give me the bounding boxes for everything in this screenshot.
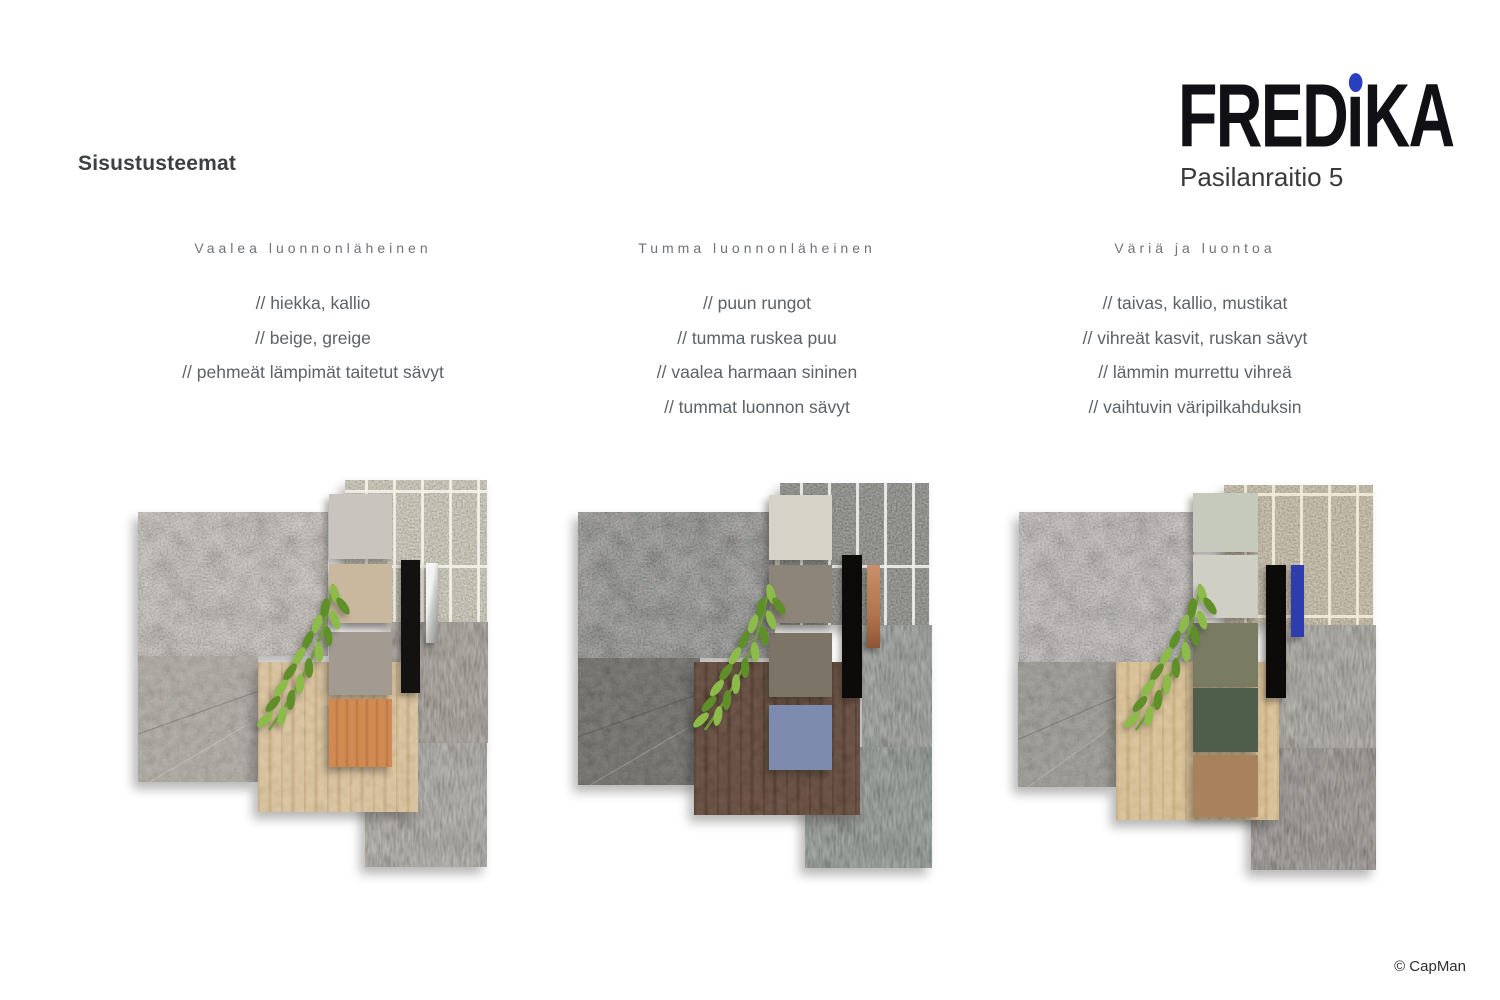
theme-bullet: // lämmin murrettu vihreä	[965, 355, 1425, 390]
theme-column-3: Väriä ja luontoa// taivas, kallio, musti…	[965, 240, 1425, 424]
black-bar-swatch	[842, 555, 862, 698]
chrome-strip-swatch	[426, 563, 438, 643]
logo-text-pre: FRED	[1178, 66, 1347, 166]
theme-bullet: // hiekka, kallio	[83, 286, 543, 321]
logo-subtitle: Pasilanraitio 5	[1180, 162, 1343, 193]
logo-letter-i	[1350, 97, 1360, 146]
blue-strip-swatch	[1291, 565, 1304, 637]
paint-swatch-1	[1193, 493, 1258, 552]
moodboard-3	[1018, 478, 1388, 878]
copyright: © CapMan	[1394, 958, 1466, 975]
concrete-swatch	[578, 658, 700, 785]
slide: Sisustusteemat FREDKA Pasilanraitio 5 Va…	[0, 0, 1500, 1000]
page-title: Sisustusteemat	[78, 152, 236, 176]
theme-bullet: // tummat luonnon sävyt	[527, 390, 987, 425]
concrete-swatch	[138, 656, 258, 782]
theme-bullet: // taivas, kallio, mustikat	[965, 286, 1425, 321]
fredika-logo: FREDKA	[1178, 72, 1500, 148]
theme-bullet: // pehmeät lämpimät taitetut sävyt	[83, 355, 543, 390]
theme-bullet: // tumma ruskea puu	[527, 321, 987, 356]
theme-header: Vaalea luonnonläheinen	[83, 240, 543, 256]
black-bar-swatch	[1266, 565, 1286, 698]
theme-bullet: // vaihtuvin väripilkahduksin	[965, 390, 1425, 425]
theme-bullet: // vaalea harmaan sininen	[527, 355, 987, 390]
paint-swatch-1	[769, 495, 832, 560]
plant-sprig	[251, 578, 351, 738]
theme-bullet: // beige, greige	[83, 321, 543, 356]
paint-swatch-1	[329, 494, 392, 559]
logo-wordmark: FREDKA	[1178, 72, 1453, 162]
black-bar-swatch	[401, 560, 420, 693]
theme-bullet: // puun rungot	[527, 286, 987, 321]
moodboard-1	[133, 478, 503, 878]
plant-sprig	[1118, 578, 1218, 738]
paint-swatch-5	[1193, 755, 1258, 817]
concrete-swatch	[1018, 662, 1116, 787]
moodboard-2	[575, 478, 945, 878]
theme-header: Väriä ja luontoa	[965, 240, 1425, 256]
logo-text-post: KA	[1364, 66, 1454, 166]
theme-bullet: // vihreät kasvit, ruskan sävyt	[965, 321, 1425, 356]
plant-sprig	[687, 578, 787, 738]
logo-dot-icon	[1348, 74, 1362, 93]
copper-strip-swatch	[867, 565, 880, 648]
theme-column-1: Vaalea luonnonläheinen// hiekka, kallio/…	[83, 240, 543, 390]
theme-column-2: Tumma luonnonläheinen// puun rungot// tu…	[527, 240, 987, 424]
theme-header: Tumma luonnonläheinen	[527, 240, 987, 256]
